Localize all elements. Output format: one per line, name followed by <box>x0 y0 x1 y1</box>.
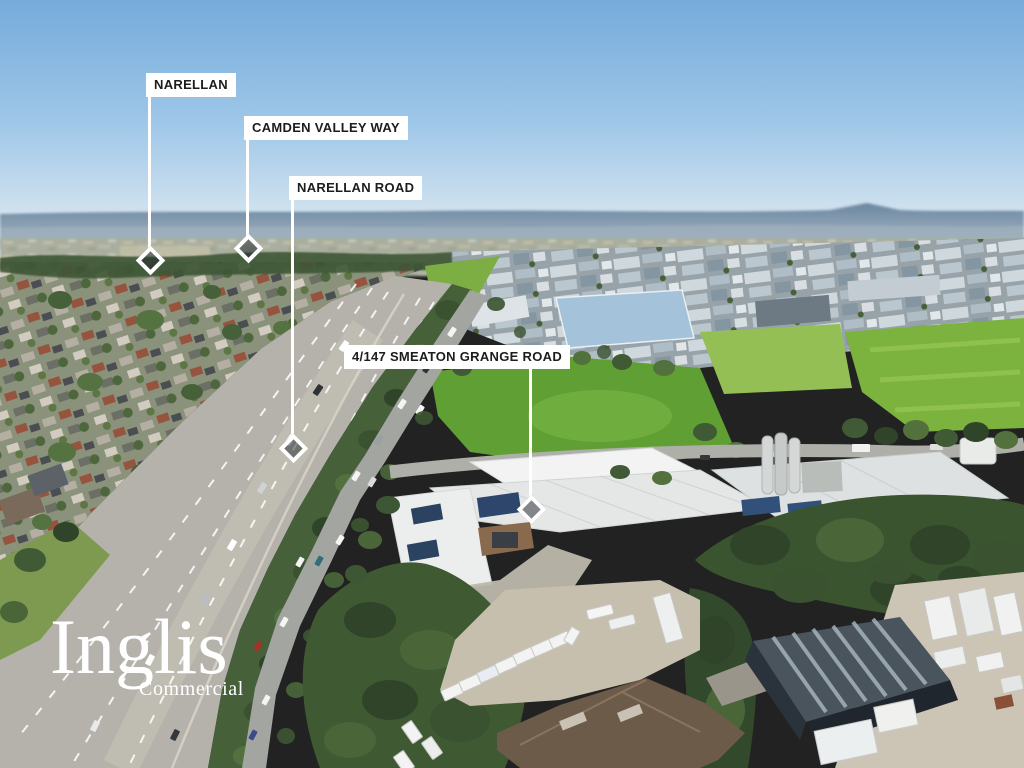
inglis-logo-wordmark: Inglis <box>50 608 228 686</box>
label-camden-valley-way: CAMDEN VALLEY WAY <box>244 116 408 140</box>
inglis-logo-division: Commercial <box>139 679 244 699</box>
label-narellan: NARELLAN <box>146 73 236 97</box>
camden-valley-way-marker-diamond <box>234 234 264 264</box>
property-marker-line <box>529 369 532 499</box>
camden-valley-way-marker-line <box>246 140 249 238</box>
property-marker-diamond <box>517 495 547 525</box>
annotation-overlay: NARELLAN CAMDEN VALLEY WAY NARELLAN ROAD… <box>0 0 1024 768</box>
label-property-address: 4/147 SMEATON GRANGE ROAD <box>344 345 570 369</box>
property-marketing-image: NARELLAN CAMDEN VALLEY WAY NARELLAN ROAD… <box>0 0 1024 768</box>
narellan-marker-line <box>148 97 151 250</box>
label-narellan-road: NARELLAN ROAD <box>289 176 422 200</box>
narellan-marker-diamond <box>136 246 166 276</box>
narellan-road-marker-diamond <box>279 434 309 464</box>
narellan-road-marker-line <box>291 200 294 438</box>
